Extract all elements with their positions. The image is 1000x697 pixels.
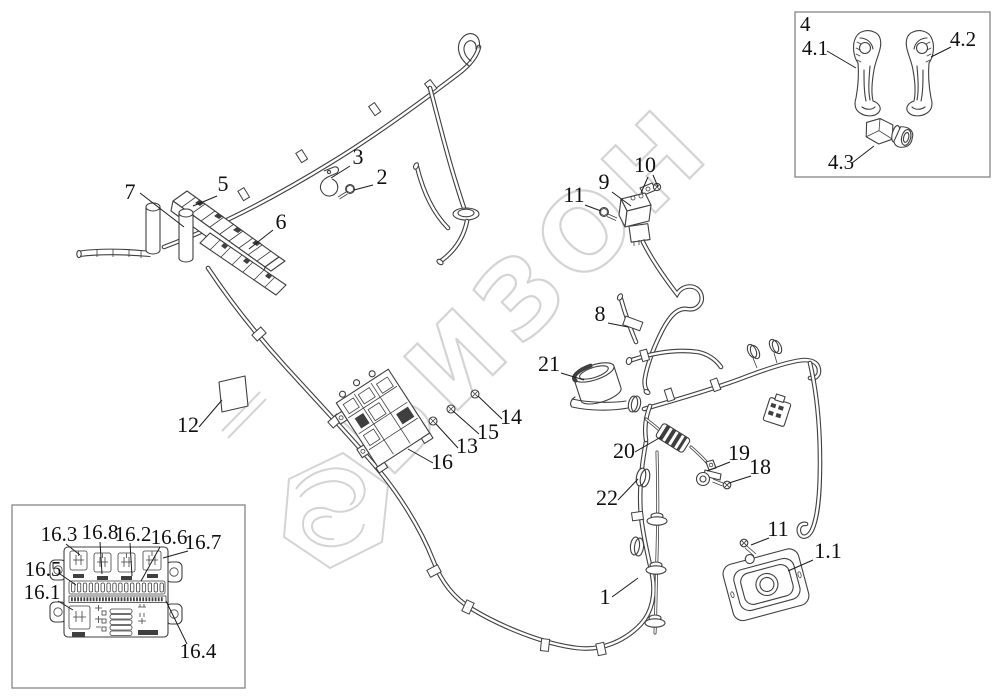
callout-13: 13	[456, 433, 478, 458]
callout-18: 18	[749, 454, 771, 479]
callout-6: 6	[276, 209, 287, 234]
callout-22: 22	[596, 485, 618, 510]
fuse-panel	[50, 547, 182, 637]
callout-16-7: 16.7	[185, 530, 222, 554]
wiring-harness-diagram: БИЗОН	[0, 0, 1000, 697]
callout-8: 8	[595, 301, 606, 326]
license-plate-lamp	[720, 539, 812, 623]
callout-16: 16	[431, 449, 453, 474]
callout-9: 9	[599, 169, 610, 194]
callout-4-2: 4.2	[950, 27, 976, 51]
callout-16-2: 16.2	[115, 522, 152, 546]
callout-20: 20	[613, 438, 635, 463]
callout-1: 1	[600, 584, 611, 609]
callout-16-4: 16.4	[180, 639, 217, 663]
clamp19-screw18	[697, 460, 731, 489]
callout-14: 14	[500, 404, 522, 429]
callout-2: 2	[377, 164, 388, 189]
callout-19: 19	[728, 440, 750, 465]
callout-10: 10	[634, 152, 656, 177]
callout-4-3: 4.3	[828, 150, 854, 174]
parts-diagram-page: БИЗОН	[0, 0, 1000, 697]
callout-16-3: 16.3	[41, 522, 78, 546]
callout-11: 11	[563, 182, 584, 207]
callout-1-1: 1.1	[814, 538, 842, 563]
callout-4-1: 4.1	[802, 36, 828, 60]
callout-3: 3	[353, 144, 364, 169]
sticker-label	[219, 376, 248, 412]
branch-tube-grommet	[413, 88, 479, 266]
clamp-and-screw	[320, 167, 354, 199]
callout-7: 7	[125, 179, 136, 204]
callout-5: 5	[218, 171, 229, 196]
callout-16-6: 16.6	[151, 525, 188, 549]
callout-16-1: 16.1	[24, 580, 61, 604]
controls-inset: 4 4.1 4.2 4.3	[795, 12, 990, 177]
horn-assembly	[571, 359, 642, 413]
callout-21: 21	[538, 351, 560, 376]
fusebox-inset: 16.3 16.8 16.2 16.6 16.7 16.5 16.1 16.4	[12, 505, 245, 688]
callout-11b: 11	[767, 516, 788, 541]
callout-16-5: 16.5	[25, 557, 62, 581]
callout-15: 15	[477, 419, 499, 444]
callout-16-8: 16.8	[82, 520, 119, 544]
controls-inset-title: 4	[800, 12, 811, 36]
callout-12: 12	[177, 412, 199, 437]
sensor-connector	[646, 419, 710, 466]
